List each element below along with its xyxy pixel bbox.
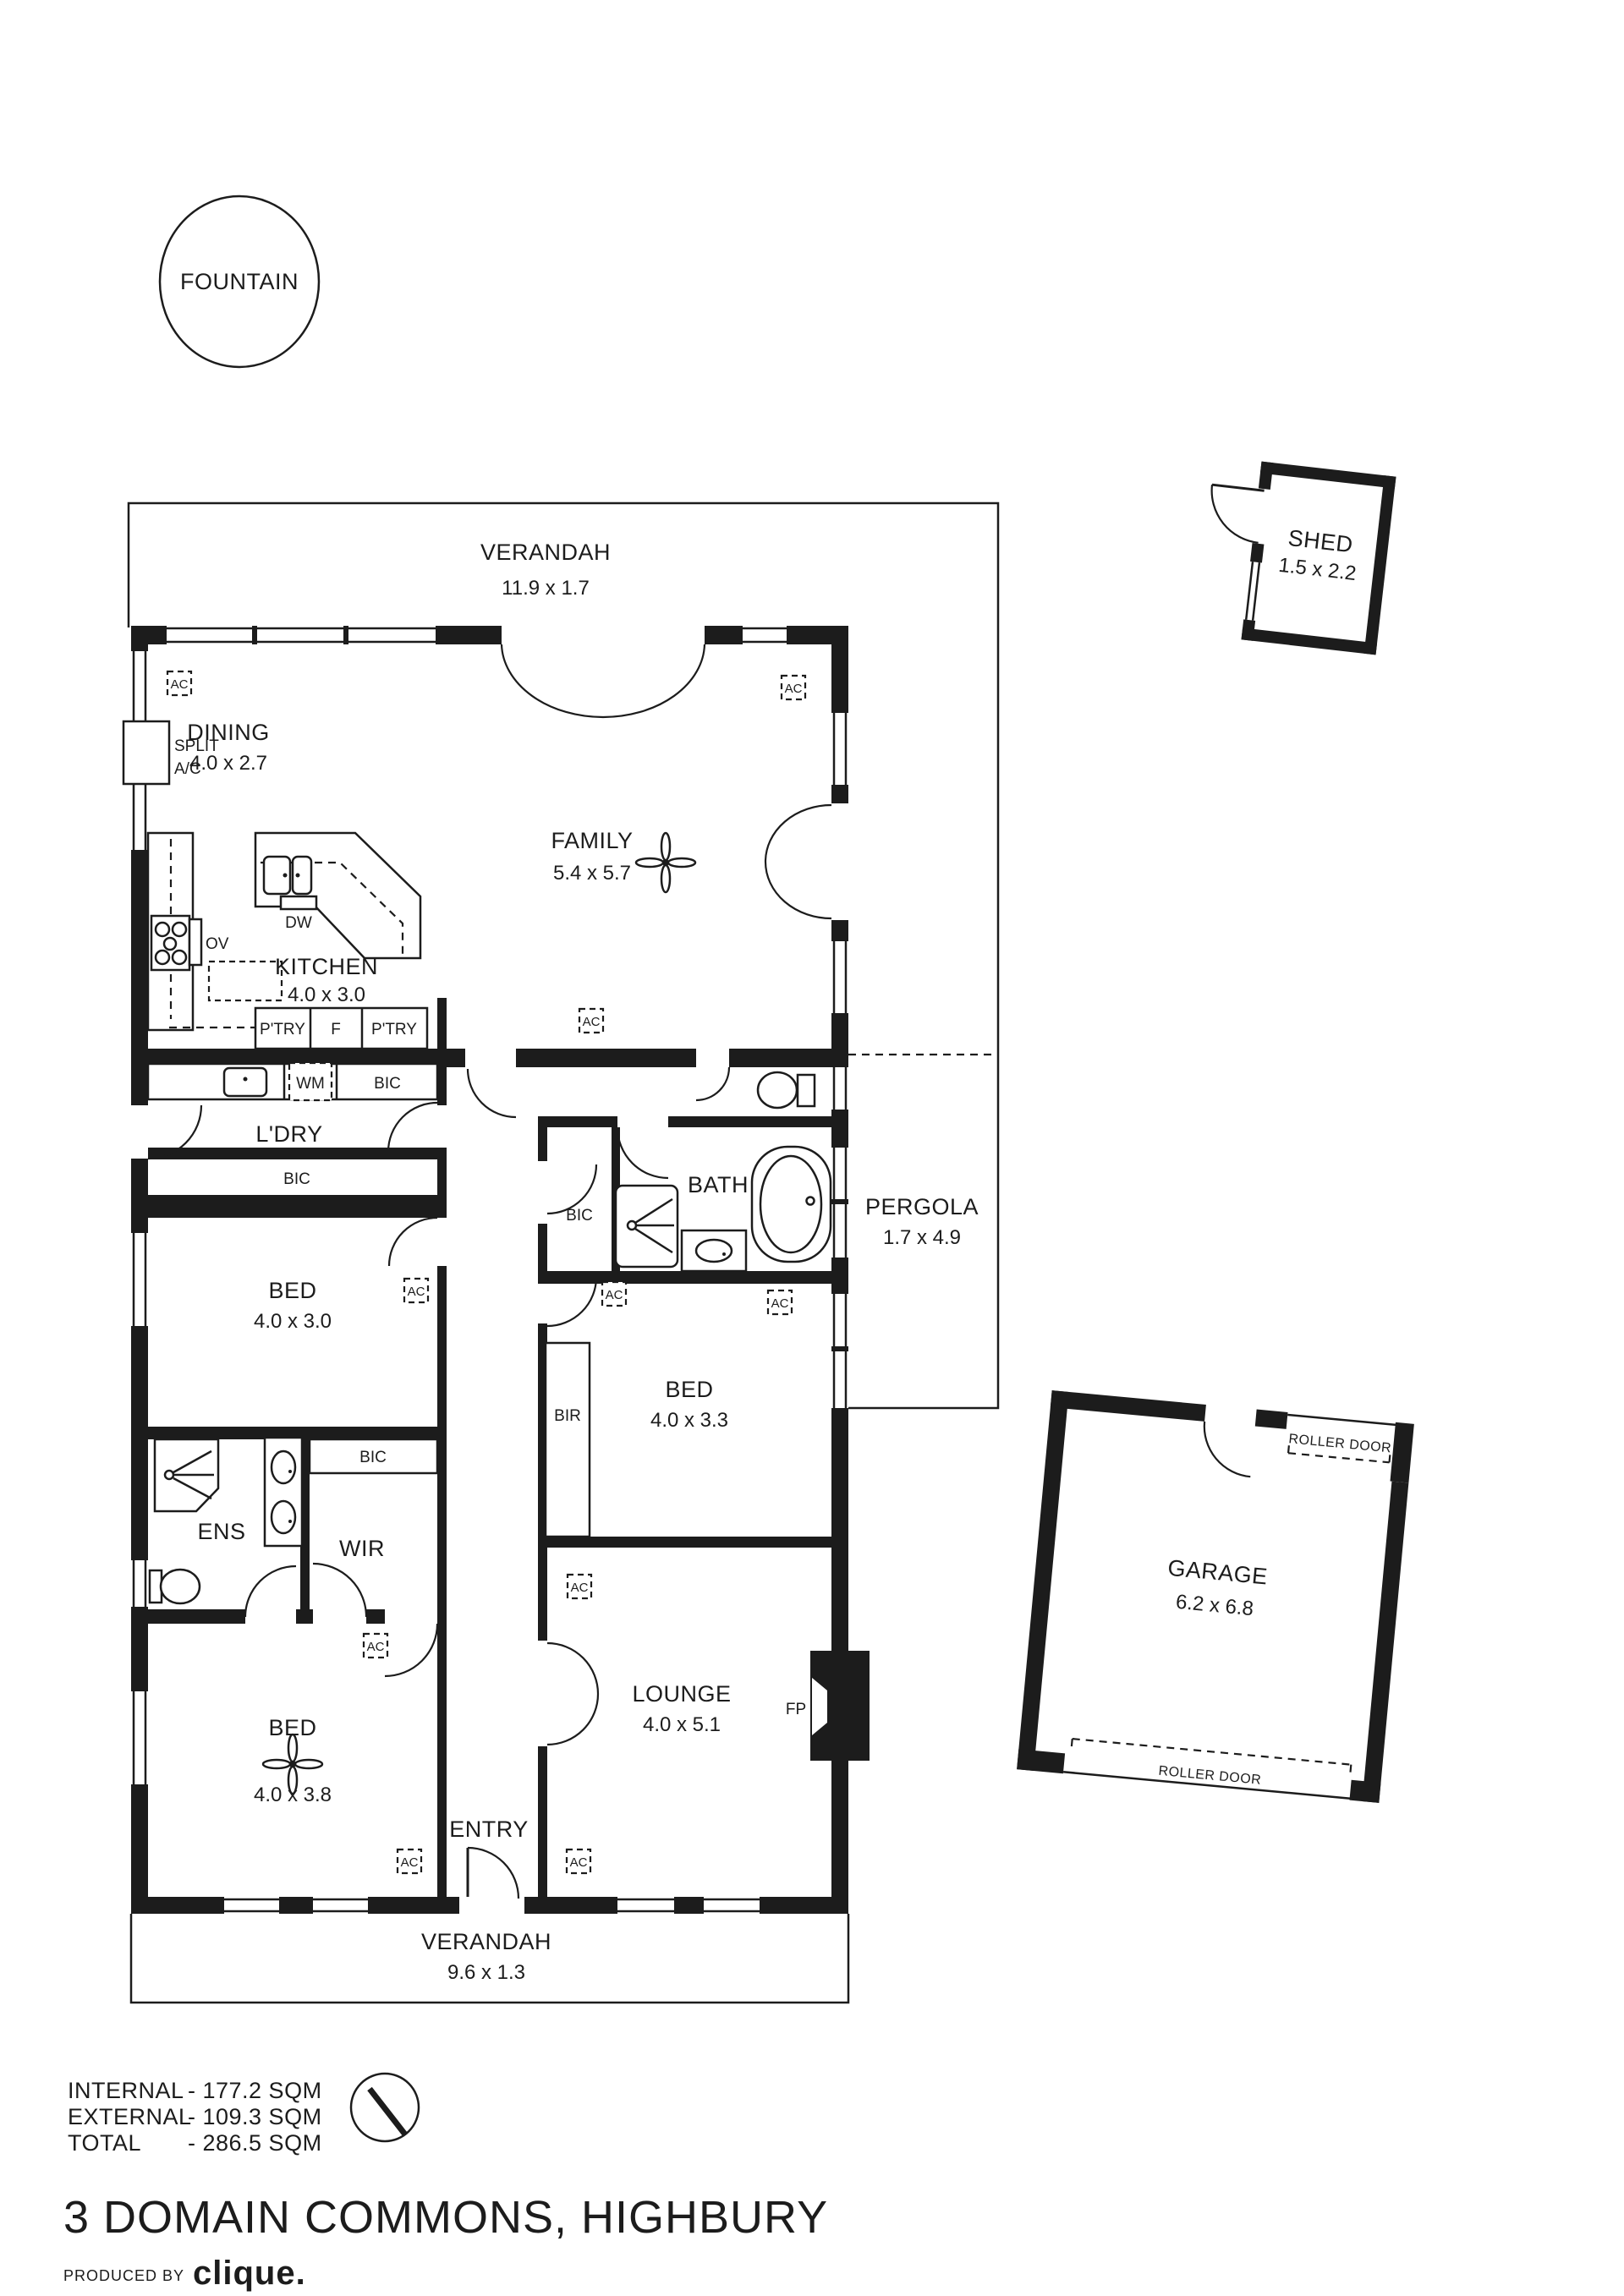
pantry-label: P'TRY [371, 1021, 417, 1038]
wc-door-arc [696, 1067, 729, 1100]
bed1-dims: 4.0 x 3.0 [254, 1310, 332, 1333]
lounge-door-arc [547, 1694, 598, 1745]
bic-label: BIC [566, 1207, 593, 1225]
verandah-bottom-outline [131, 1914, 848, 2003]
ac-label: AC [771, 1296, 789, 1311]
dining-label: DINING [187, 720, 270, 745]
dishwasher-label: DW [285, 914, 312, 932]
oven-label: OV [206, 935, 229, 953]
north-needle [370, 2089, 405, 2134]
entry-label: ENTRY [449, 1817, 529, 1842]
produced-by-label: PRODUCED BY [63, 2267, 184, 2284]
shed-door-leaf [1212, 485, 1265, 490]
bir-label: BIR [554, 1407, 581, 1425]
ac-unit-box: AC [782, 676, 805, 699]
ac-unit-box: AC [404, 1279, 428, 1302]
window [831, 1294, 848, 1408]
bic-label: BIC [359, 1449, 387, 1466]
shed: SHED 1.5 x 2.2 [1195, 456, 1396, 655]
bathtub-icon [752, 1147, 831, 1262]
ac-unit-box: AC [167, 671, 191, 695]
ac-unit-box: AC [398, 1849, 421, 1873]
verandah-bottom-label: VERANDAH [421, 1929, 551, 1954]
bed1-label: BED [268, 1278, 316, 1303]
lounge-door-arc [547, 1643, 598, 1694]
window [167, 626, 436, 644]
bed2-label: BED [665, 1377, 713, 1402]
closets [310, 1343, 590, 1537]
external-label: EXTERNAL [68, 2104, 192, 2129]
internal-label: INTERNAL [68, 2078, 184, 2103]
lounge-label: LOUNGE [632, 1681, 731, 1707]
ac-label: AC [171, 677, 189, 692]
external-value: - 109.3 SQM [188, 2104, 322, 2129]
bed2-door-arc [547, 1277, 596, 1326]
total-value: - 286.5 SQM [188, 2130, 322, 2156]
bir-closet [546, 1343, 590, 1537]
fountain-label: FOUNTAIN [180, 269, 299, 294]
pergola-dims: 1.7 x 4.9 [883, 1226, 961, 1249]
toilet-icon [161, 1570, 200, 1603]
garage-door-arc [1200, 1422, 1255, 1477]
french-door-arc [765, 862, 831, 918]
shed-dims: 1.5 x 2.2 [1277, 554, 1358, 585]
fountain: FOUNTAIN [160, 196, 319, 367]
dining-dims: 4.0 x 2.7 [189, 752, 267, 775]
fridge-label: F [331, 1021, 341, 1038]
garage: ROLLER DOOR ROLLER DOOR GARAGE 6.2 x 6.8 [1017, 1390, 1414, 1803]
page-title: 3 DOMAIN COMMONS, HIGHBURY [63, 2192, 828, 2243]
window [743, 628, 787, 642]
laundry-sink-icon [224, 1068, 266, 1096]
brand-logo: clique. [193, 2255, 306, 2292]
verandah-bottom-dims: 9.6 x 1.3 [447, 1961, 525, 1984]
pergola-label: PERGOLA [865, 1194, 979, 1219]
ac-label: AC [570, 1855, 588, 1870]
french-door-arc [603, 644, 705, 717]
window [831, 1148, 848, 1258]
family-dims: 5.4 x 5.7 [553, 862, 631, 885]
vanity-icon [682, 1230, 746, 1271]
bath-door-arc [617, 1127, 668, 1178]
window [224, 1899, 279, 1911]
bed1-door-arc [389, 1218, 437, 1266]
ac-unit-box: AC [568, 1575, 591, 1598]
ac-label: AC [571, 1581, 589, 1595]
ac-label: AC [367, 1640, 385, 1654]
window [134, 1691, 145, 1784]
french-door-arc [765, 805, 831, 862]
total-label: TOTAL [68, 2130, 141, 2156]
hall-door-arc [468, 1069, 516, 1117]
ens-label: ENS [197, 1519, 245, 1544]
floorplan-drawing: FOUNTAIN VERANDAH 11.9 x 1.7 PERGOLA 1.7… [0, 0, 1624, 2296]
vanity-icon [265, 1438, 302, 1546]
garage-dims: 6.2 x 6.8 [1175, 1591, 1254, 1620]
ac-unit-box: AC [567, 1849, 590, 1873]
ac-label: AC [785, 682, 803, 696]
bed2-dims: 4.0 x 3.3 [650, 1409, 728, 1432]
verandah-top-label: VERANDAH [480, 540, 611, 565]
ac-unit-box: AC [768, 1290, 792, 1314]
toilet-cistern [798, 1075, 815, 1106]
laundry-label: L'DRY [255, 1121, 322, 1147]
toilet-icon [758, 1072, 797, 1108]
bath-label: BATH [688, 1172, 749, 1197]
bed3-dims: 4.0 x 3.8 [254, 1784, 332, 1806]
internal-value: - 177.2 SQM [188, 2078, 322, 2103]
shed-label: SHED [1287, 525, 1354, 558]
fireplace-icon [810, 1651, 870, 1761]
roller-door-label: ROLLER DOOR [1288, 1432, 1392, 1455]
window [834, 941, 846, 1013]
floorplan-page: FOUNTAIN VERANDAH 11.9 x 1.7 PERGOLA 1.7… [0, 0, 1624, 2296]
window [704, 1899, 760, 1911]
bic-label: BIC [283, 1170, 310, 1188]
ac-label: AC [583, 1015, 601, 1029]
wir-label: WIR [339, 1536, 385, 1561]
kitchen-dims: 4.0 x 3.0 [288, 984, 365, 1006]
ac-unit-box: AC [364, 1634, 387, 1658]
ac-label: AC [606, 1288, 623, 1302]
dishwasher-icon [281, 896, 316, 909]
entry-door-arc [468, 1848, 518, 1899]
bed3-label: BED [268, 1715, 316, 1740]
laundry-fixtures: WM BIC [148, 1063, 437, 1100]
laundry-hall-door-arc [388, 1103, 437, 1152]
sink-icon [293, 857, 311, 894]
roller-door-label: ROLLER DOOR [1158, 1764, 1262, 1788]
wir-door-arc [313, 1564, 366, 1617]
french-door-arc [502, 644, 603, 717]
window [1246, 562, 1259, 620]
window [134, 1560, 145, 1607]
washing-machine-label: WM [296, 1075, 325, 1093]
ac-label: AC [401, 1855, 419, 1870]
verandah-top-dims: 11.9 x 1.7 [502, 577, 590, 600]
kitchen-fixtures: OV DW P'TRY F P'TRY [148, 833, 427, 1049]
oven-icon [189, 919, 201, 965]
shed-door-arc [1206, 485, 1265, 543]
ceiling-fan-icon [636, 833, 695, 892]
ac-unit-box: AC [602, 1282, 626, 1306]
area-summary: INTERNAL - 177.2 SQM EXTERNAL - 109.3 SQ… [68, 2078, 322, 2156]
lounge-dims: 4.0 x 5.1 [643, 1713, 721, 1736]
bed3-door-arc [385, 1624, 437, 1676]
window [834, 1067, 846, 1110]
kitchen-label: KITCHEN [275, 954, 378, 979]
window [134, 1233, 145, 1326]
ac-label: AC [408, 1285, 425, 1299]
ac-unit-box: AC [579, 1009, 603, 1033]
window [617, 1899, 674, 1911]
ens-door-arc [245, 1566, 296, 1617]
bic-label: BIC [374, 1075, 401, 1093]
pantry-label: P'TRY [260, 1021, 305, 1038]
north-compass-icon [351, 2074, 419, 2141]
garage-label: GARAGE [1166, 1555, 1269, 1590]
window [834, 713, 846, 785]
window [313, 1899, 368, 1911]
fireplace-label: FP [786, 1701, 806, 1718]
family-label: FAMILY [551, 828, 633, 853]
